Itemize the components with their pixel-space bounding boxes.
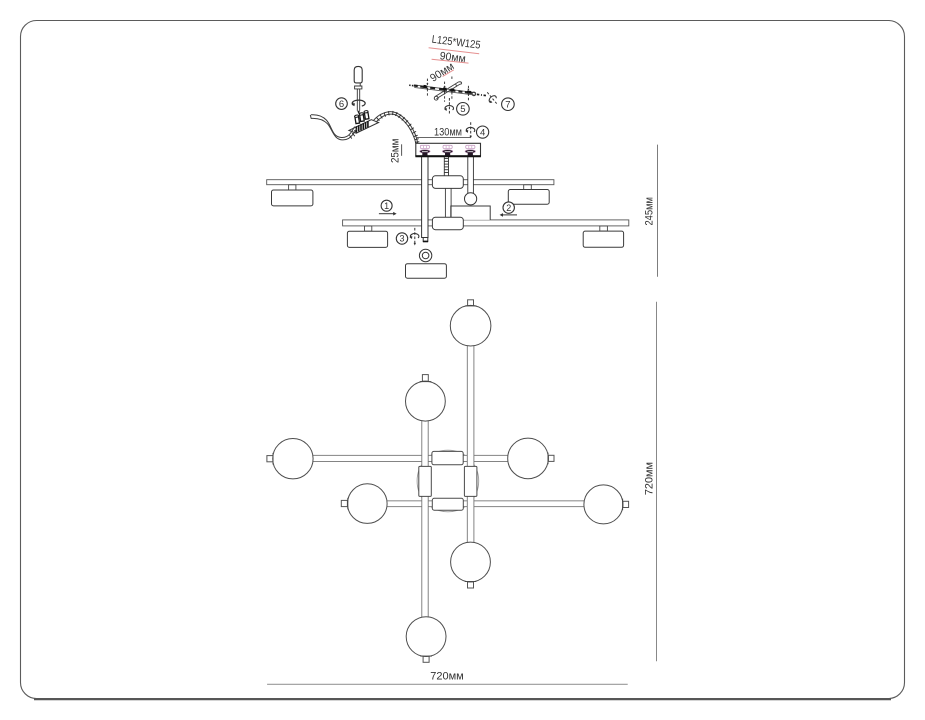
svg-text:130мм: 130мм xyxy=(434,126,462,138)
svg-text:4: 4 xyxy=(480,128,485,139)
svg-text:720мм: 720мм xyxy=(644,462,656,495)
svg-text:5: 5 xyxy=(460,104,465,115)
svg-text:3: 3 xyxy=(399,234,404,244)
svg-text:90мм: 90мм xyxy=(439,50,466,65)
svg-text:6: 6 xyxy=(339,99,344,110)
svg-text:245мм: 245мм xyxy=(643,197,655,226)
svg-text:7: 7 xyxy=(505,100,510,111)
svg-text:90мм: 90мм xyxy=(428,60,456,84)
svg-text:25мм: 25мм xyxy=(389,139,401,164)
svg-text:1: 1 xyxy=(384,201,389,211)
svg-text:2: 2 xyxy=(506,203,511,213)
svg-text:720мм: 720мм xyxy=(430,670,464,682)
